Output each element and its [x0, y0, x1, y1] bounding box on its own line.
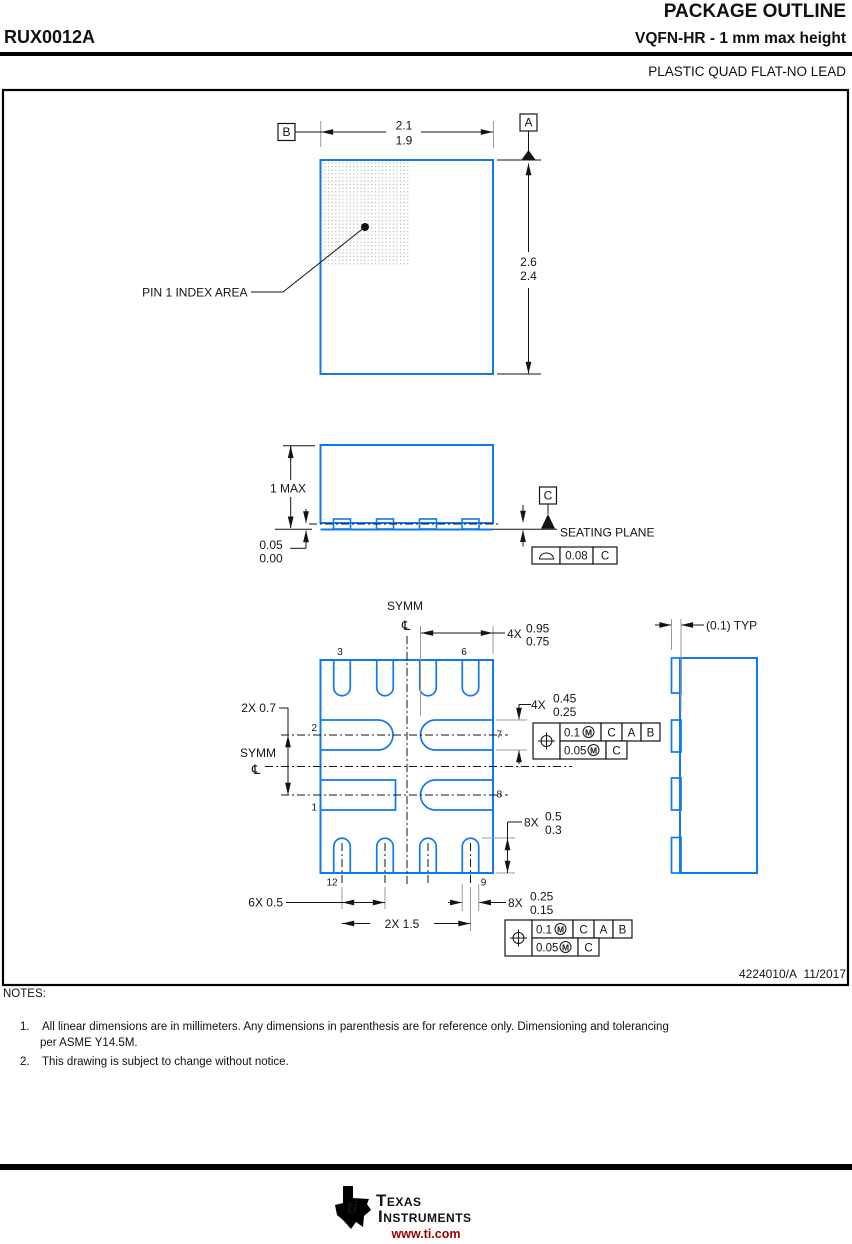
dim-standoff-max: 0.05 [259, 538, 283, 552]
dim-body-width-max: 2.1 [396, 119, 413, 133]
notes-heading: NOTES: [3, 988, 46, 1000]
note-2-number: 2. [20, 1056, 30, 1068]
symm-label-left: SYMM [240, 746, 276, 760]
package-outline-drawing: PIN 1 INDEX AREA 2.1 1.9 B A 2.6 2.4 [0, 88, 852, 987]
pin1-index-label: PIN 1 INDEX AREA [142, 286, 247, 300]
centerline-symbol-left: ℄ [251, 763, 261, 778]
fcf-tolerance-1: 0.1 [564, 728, 580, 740]
fcf-datum-1: C [607, 728, 615, 740]
symm-label-top: SYMM [387, 599, 423, 613]
package-type: PLASTIC QUAD FLAT-NO LEAD [648, 64, 846, 79]
dim-bottom-lead-length: 8X 0.5 0.3 [482, 810, 562, 874]
dim-value: 2X 1.5 [385, 917, 420, 931]
top-lead [420, 660, 437, 696]
package-body-side [321, 445, 494, 523]
fcf-symbol-cell [532, 547, 560, 564]
seating-plane-label: SEATING PLANE [560, 526, 654, 540]
dim-package-height: 1 MAX [270, 482, 306, 496]
drawing-number: 4224010/A [739, 967, 797, 981]
svg-text:M: M [557, 924, 564, 934]
side-detail-view: (0.1) TYP [655, 619, 757, 874]
dim-min: 0.15 [530, 903, 554, 917]
centerline-symbol-top: ℄ [401, 619, 411, 634]
ti-logo-texas-icon: ti [334, 1185, 372, 1231]
fcf-datum-3: B [619, 925, 627, 937]
dim-standoff-min: 0.00 [259, 552, 283, 566]
svg-text:M: M [562, 942, 569, 952]
flatness-fcf: 0.08 C [532, 547, 617, 564]
pin-number-7: 7 [497, 730, 503, 741]
dim-max: 0.5 [545, 810, 562, 824]
footer-rule [0, 1164, 852, 1170]
dim-value: 6X 0.5 [248, 896, 283, 910]
dim-lead-width: 8X 0.25 0.15 [448, 884, 554, 917]
pin-number-9: 9 [481, 878, 487, 889]
dim-min: 0.75 [526, 635, 550, 649]
fcf-datum-3: B [647, 728, 655, 740]
pin-number-2: 2 [311, 723, 317, 734]
flatness-datum: C [601, 551, 609, 563]
fcf-datum-1: C [579, 925, 587, 937]
dim-body-height-max: 2.6 [520, 255, 537, 269]
note-1-number: 1. [20, 1021, 30, 1033]
position-fcf-bottom-leads: 0.1 M C A B 0.05 M C [505, 920, 632, 956]
bottom-view: SYMM ℄ SYMM ℄ 3 6 2 7 1 8 12 9 4X 0.95 0… [240, 599, 660, 956]
dim-pitch: 6X 0.5 [248, 887, 385, 910]
package-height-subtitle: VQFN-HR - 1 mm max height [635, 30, 846, 48]
dim-body-height-min: 2.4 [520, 269, 537, 283]
fcf-tolerance-2: 0.05 [564, 746, 586, 758]
drawing-frame [3, 90, 848, 985]
brand-name-bottom: Instruments [378, 1207, 472, 1227]
dim-pad-standoff-typ: (0.1) TYP [706, 619, 757, 633]
note-2-line-1: This drawing is subject to change withou… [42, 1056, 289, 1068]
fcf-tolerance-1: 0.1 [536, 925, 552, 937]
package-body-detail [680, 658, 757, 873]
dim-value: 2X 0.7 [241, 701, 276, 715]
fcf-datum-2: A [628, 728, 636, 740]
header-rule [0, 52, 852, 56]
dim-prefix: 8X [524, 816, 539, 830]
ti-logo-letters: ti [347, 1198, 359, 1217]
part-number: RUX0012A [4, 27, 95, 48]
datum-c-triangle-icon [541, 514, 555, 529]
position-fcf-side-leads: 0.1 M C A B 0.05 M C [533, 723, 660, 759]
dim-max: 0.45 [553, 692, 577, 706]
dim-min: 0.25 [553, 705, 577, 719]
fcf-datum-1b: C [612, 746, 620, 758]
pin-number-8: 8 [497, 790, 503, 801]
dim-body-width-min: 1.9 [396, 134, 413, 148]
page-title: PACKAGE OUTLINE [664, 1, 846, 23]
datasheet-page: RUX0012A PACKAGE OUTLINE VQFN-HR - 1 mm … [0, 0, 852, 1244]
dim-max: 0.95 [526, 622, 550, 636]
svg-text:M: M [585, 727, 592, 737]
dim-min: 0.3 [545, 823, 562, 837]
datum-a-label: A [524, 116, 532, 130]
drawing-date: 11/2017 [804, 967, 847, 981]
fcf-tolerance-2: 0.05 [536, 943, 558, 955]
dim-max: 0.25 [530, 890, 554, 904]
dim-prefix: 4X [507, 627, 522, 641]
dim-prefix: 8X [508, 896, 523, 910]
fcf-datum-2: A [600, 925, 608, 937]
datum-c-label: C [544, 489, 553, 503]
pin-number-1: 1 [311, 803, 317, 814]
leader-line [279, 708, 288, 735]
datum-b-label: B [282, 125, 290, 139]
pin-number-3: 3 [337, 647, 343, 658]
pin-number-6: 6 [461, 647, 467, 658]
dim-span: 2X 1.5 [342, 887, 471, 931]
svg-text:M: M [590, 745, 597, 755]
top-lead [377, 660, 394, 696]
side-view: 1 MAX 0.05 0.00 C SEATING PLANE 0.08 [259, 445, 654, 566]
dim-prefix: 4X [531, 698, 546, 712]
top-lead [462, 660, 479, 696]
fcf-datum-1b: C [584, 943, 592, 955]
pin-number-12: 12 [326, 878, 338, 889]
datum-a-triangle-icon [522, 150, 536, 160]
note-1-line-2: per ASME Y14.5M. [40, 1037, 138, 1049]
flatness-tolerance: 0.08 [565, 551, 587, 563]
note-1-line-1: All linear dimensions are in millimeters… [42, 1021, 669, 1033]
top-lead [334, 660, 351, 696]
ti-url[interactable]: www.ti.com [0, 1227, 852, 1241]
top-view: PIN 1 INDEX AREA 2.1 1.9 B A 2.6 2.4 [142, 114, 541, 374]
